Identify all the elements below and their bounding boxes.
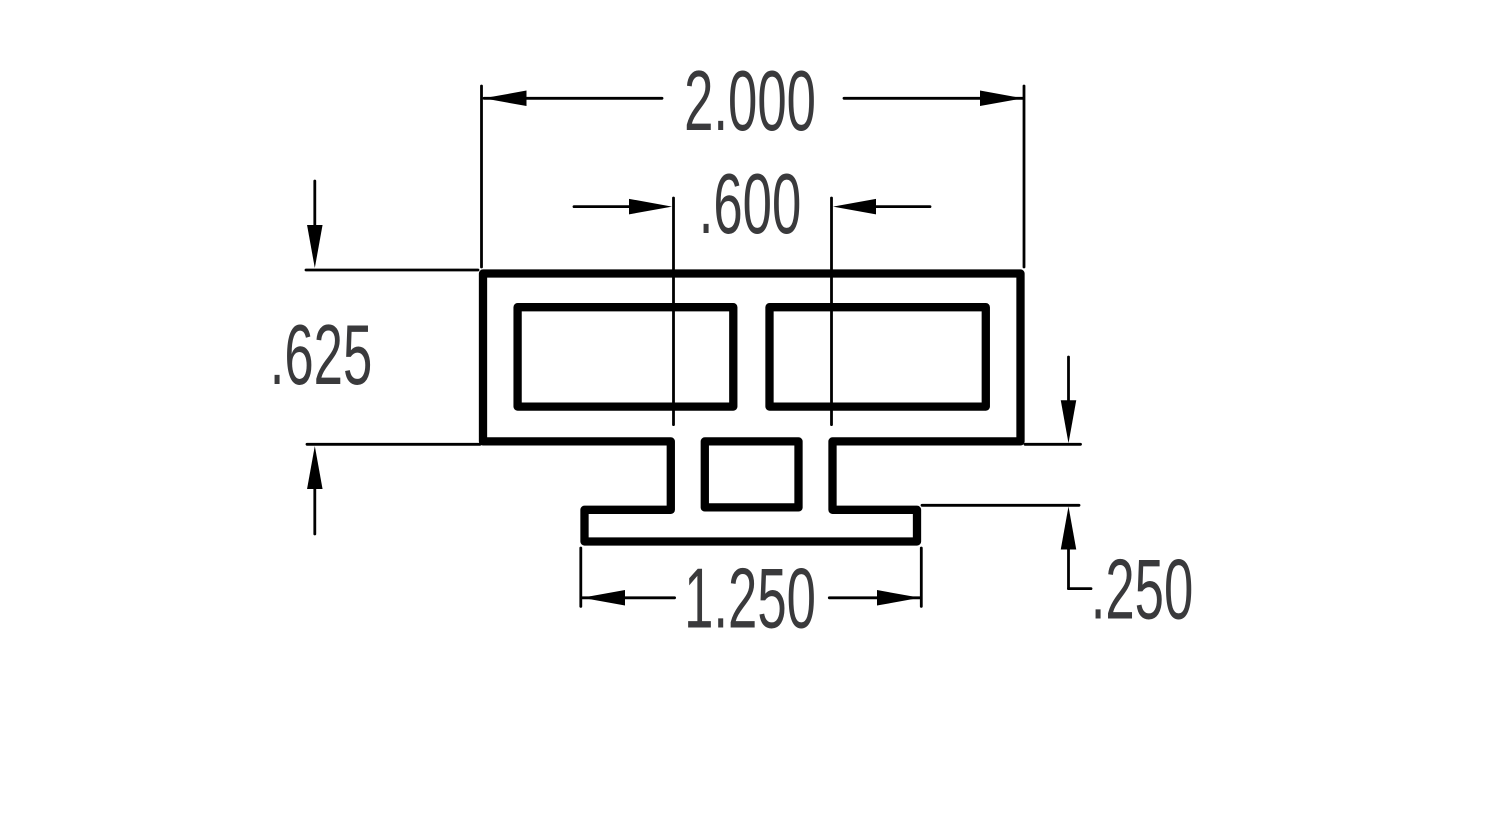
svg-text:1.250: 1.250: [684, 551, 816, 646]
svg-text:2.000: 2.000: [684, 53, 816, 148]
svg-text:.600: .600: [699, 156, 802, 251]
svg-text:.250: .250: [1091, 542, 1194, 637]
svg-text:.625: .625: [270, 307, 373, 402]
